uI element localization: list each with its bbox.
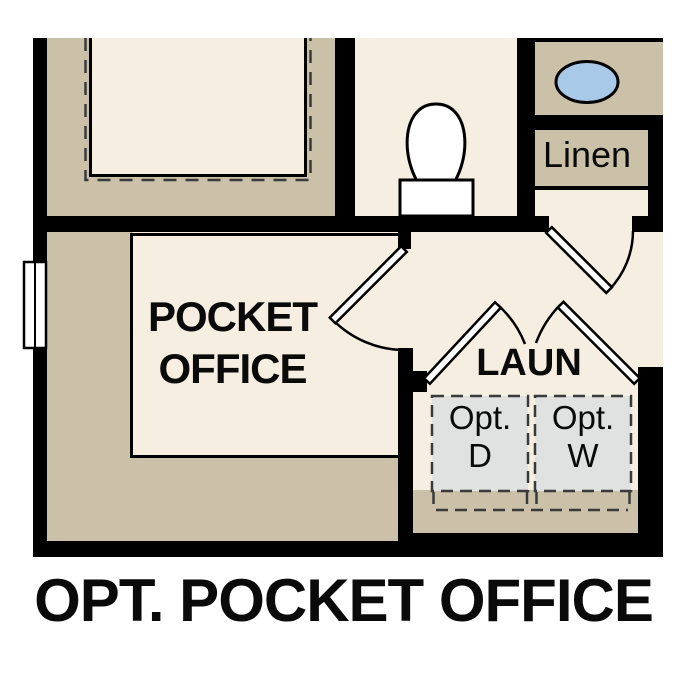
linen-label: Linen <box>517 134 657 176</box>
optional-dryer-label: Opt. D <box>432 399 528 475</box>
optional-dryer-label-line1: Opt. <box>432 399 528 437</box>
optional-washer-label-line1: Opt. <box>535 399 631 437</box>
pocket-office-label-line2: OFFICE <box>110 343 355 395</box>
toilet-icon <box>400 104 473 216</box>
plan-title: OPT. POCKET OFFICE <box>0 566 687 635</box>
optional-dryer-label-line2: D <box>432 437 528 475</box>
optional-washer-label: Opt. W <box>535 399 631 475</box>
pocket-office-label: POCKET OFFICE <box>110 291 355 395</box>
adjacent-room-floor <box>89 38 307 177</box>
laundry-label: LAUN <box>454 342 604 385</box>
optional-washer-label-line2: W <box>535 437 631 475</box>
sink-icon <box>556 62 618 103</box>
window-icon <box>24 262 46 348</box>
floor-plan-canvas: POCKET OFFICE LAUN Linen Opt. D Opt. W O… <box>0 0 687 687</box>
pocket-office-label-line1: POCKET <box>110 291 355 343</box>
